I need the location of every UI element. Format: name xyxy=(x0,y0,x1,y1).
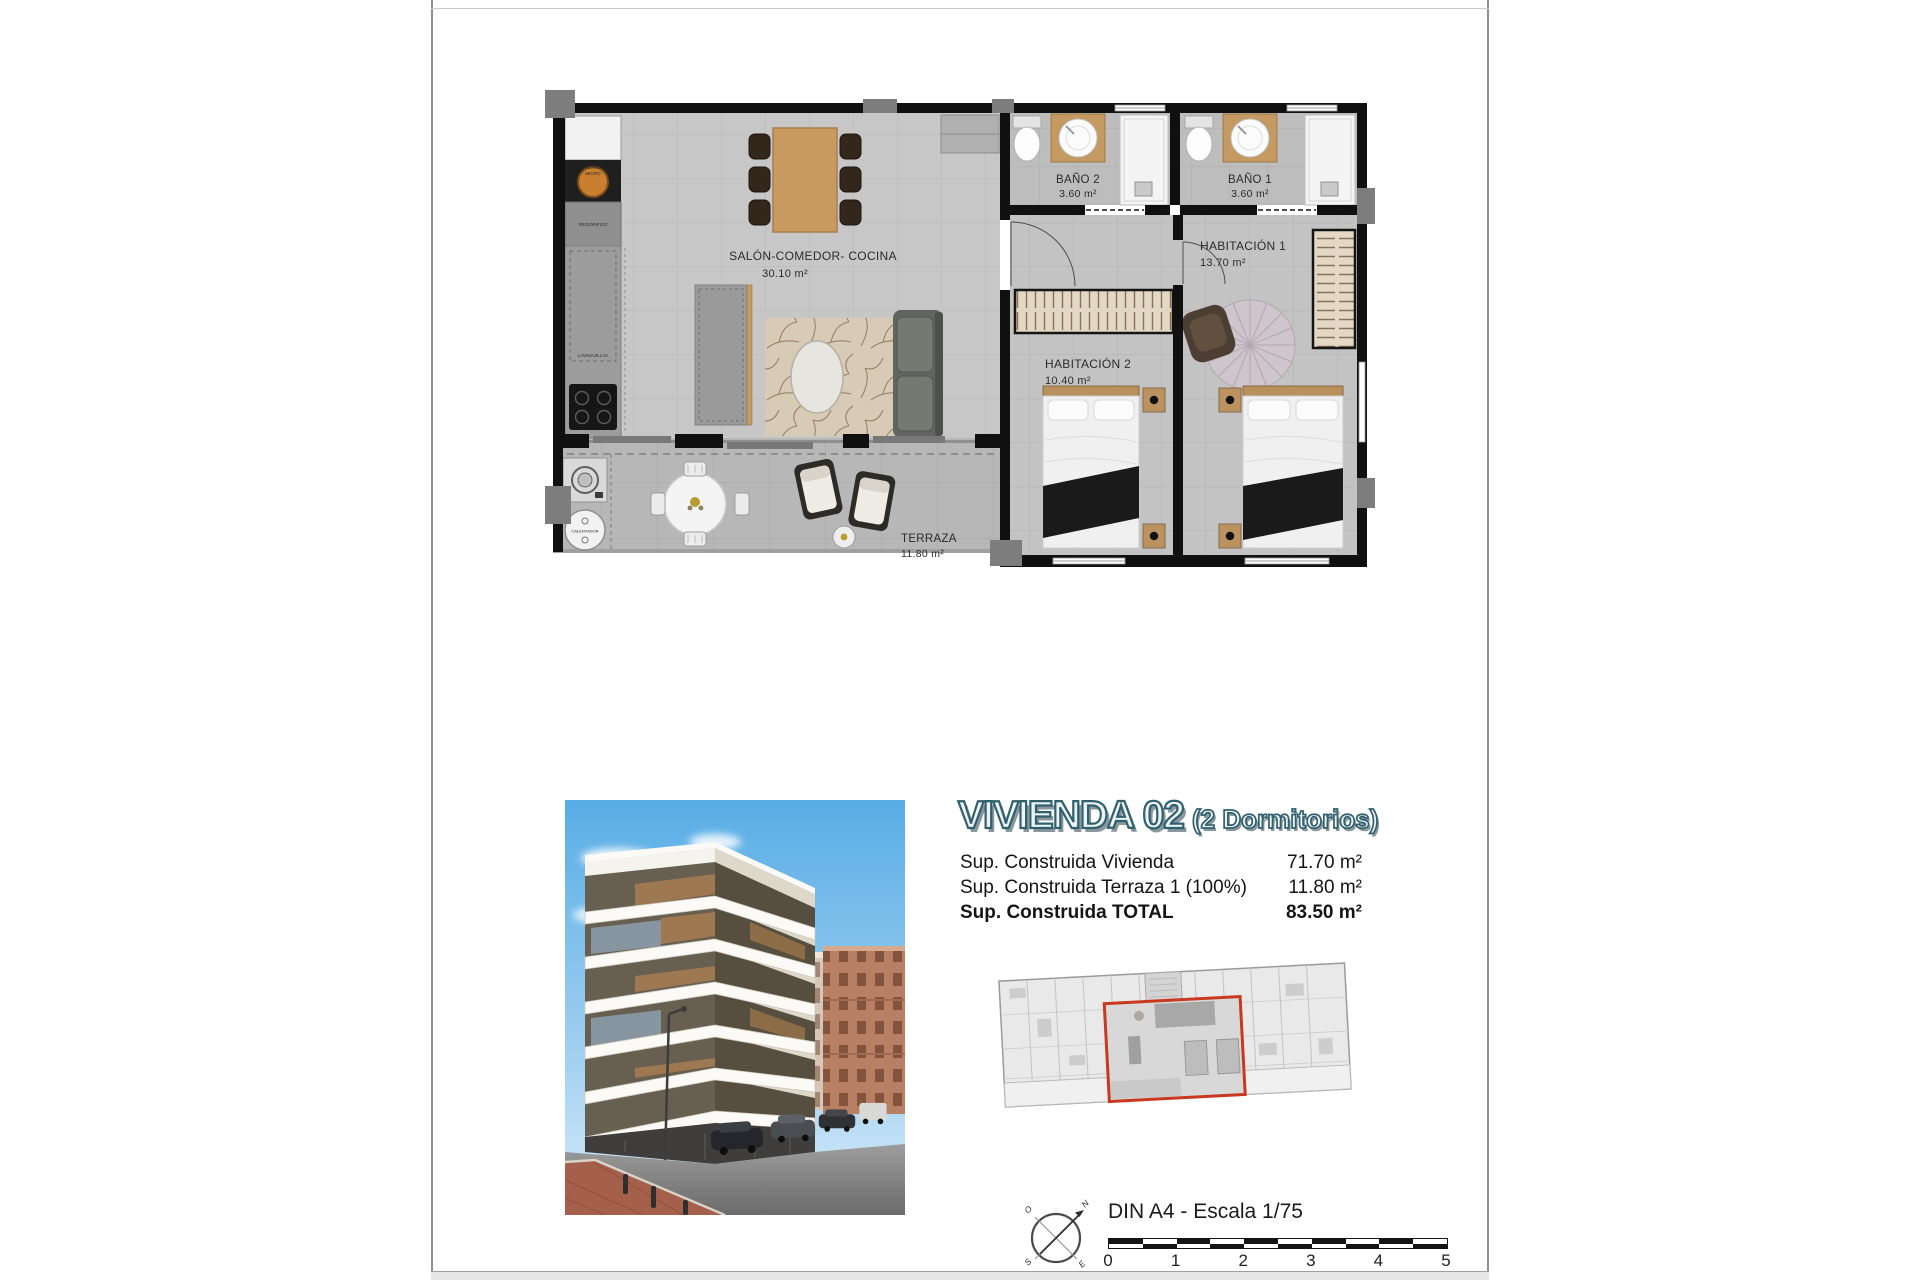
area-row-total: Sup. Construida TOTAL 83.50 m² xyxy=(960,900,1362,925)
compass-s: S xyxy=(1022,1256,1033,1267)
page-top-border xyxy=(431,8,1489,9)
sofa xyxy=(893,310,943,438)
scale-num-2: 2 xyxy=(1238,1251,1247,1271)
page-bottom-shade xyxy=(431,1272,1489,1280)
scale-num-4: 4 xyxy=(1374,1251,1383,1271)
room-label-bano1: BAÑO 1 xyxy=(1228,173,1272,186)
room-label-bano2: BAÑO 2 xyxy=(1056,173,1100,186)
room-label-hab1: HABITACIÓN 1 xyxy=(1200,238,1286,253)
toilet-tank xyxy=(1185,116,1213,128)
area-row-vivienda: Sup. Construida Vivienda 71.70 m² xyxy=(960,850,1362,875)
toilet-bowl xyxy=(1014,127,1040,161)
area-row-label: Sup. Construida Vivienda xyxy=(960,850,1174,875)
horno-micro-label: HORNO xyxy=(584,165,602,170)
key-plan xyxy=(988,950,1363,1125)
kitchen-island xyxy=(695,285,752,425)
unit-title-main: VIVIENDA 02 xyxy=(958,794,1184,837)
scale-numbers: 0 1 2 3 4 5 xyxy=(1108,1251,1446,1271)
room-area-bano2: 3.60 m² xyxy=(1059,188,1097,200)
area-row-terraza: Sup. Construida Terraza 1 (100%) 11.80 m… xyxy=(960,875,1362,900)
scale-num-3: 3 xyxy=(1306,1251,1315,1271)
terrace-side-table xyxy=(833,526,855,548)
room-label-hab2: HABITACIÓN 2 xyxy=(1045,356,1131,371)
toilet-tank xyxy=(1013,116,1041,128)
key-plan-highlight xyxy=(1104,997,1245,1102)
kitchen-units: HORNO MICRO FRIGORIFICO LAVAVAJILLAS xyxy=(565,116,625,438)
living-rug xyxy=(765,318,893,436)
unit-title: VIVIENDA 02(2 Dormitorios) xyxy=(958,794,1378,838)
horno-micro-label2: MICRO xyxy=(585,171,601,176)
lavavajillas-label: LAVAVAJILLAS xyxy=(578,353,608,358)
compass-o: O xyxy=(1022,1203,1034,1215)
page-right-border xyxy=(1487,0,1489,1280)
frigorifico-label: FRIGORIFICO xyxy=(579,222,608,227)
floor-plan: HORNO MICRO FRIGORIFICO LAVAVAJILLAS xyxy=(545,90,1375,580)
area-row-value: 71.70 m² xyxy=(1287,850,1362,875)
coffee-table xyxy=(791,341,843,413)
scale-num-1: 1 xyxy=(1171,1251,1180,1271)
room-label-salon: SALÓN-COMEDOR- COCINA xyxy=(729,248,897,263)
scale-num-5: 5 xyxy=(1441,1251,1450,1271)
room-label-terraza: TERRAZA xyxy=(901,533,957,545)
living-sideboard xyxy=(941,115,999,153)
room-area-bano1: 3.60 m² xyxy=(1231,188,1269,200)
room-area-hab1: 13.70 m² xyxy=(1200,257,1246,269)
area-table: Sup. Construida Vivienda 71.70 m² Sup. C… xyxy=(960,850,1362,925)
room-area-hab2: 10.40 m² xyxy=(1045,375,1091,387)
plan-sheet-page: HORNO MICRO FRIGORIFICO LAVAVAJILLAS xyxy=(0,0,1920,1280)
area-row-value: 83.50 m² xyxy=(1286,900,1362,925)
room-area-terraza: 11.80 m² xyxy=(901,548,944,560)
building-photo xyxy=(565,800,905,1215)
scale-bar xyxy=(1108,1238,1448,1249)
calentador-label: CALENTADOR xyxy=(571,529,598,534)
unit-title-sub: (2 Dormitorios) xyxy=(1192,804,1378,834)
sink-basin xyxy=(1231,119,1269,157)
room-area-salon: 30.10 m² xyxy=(762,268,808,280)
wardrobe-hab2 xyxy=(1015,290,1173,333)
toilet-bowl xyxy=(1186,127,1212,161)
area-row-label: Sup. Construida TOTAL xyxy=(960,900,1174,925)
area-row-value: 11.80 m² xyxy=(1288,875,1362,900)
wardrobe-hab1 xyxy=(1313,230,1355,348)
scale-text: DIN A4 - Escala 1/75 xyxy=(1108,1200,1303,1224)
sink-basin xyxy=(1059,119,1097,157)
compass-n: N xyxy=(1079,1197,1091,1209)
area-row-label: Sup. Construida Terraza 1 (100%) xyxy=(960,875,1247,900)
page-left-border xyxy=(431,0,433,1280)
scale-num-0: 0 xyxy=(1103,1251,1112,1271)
compass-e: E xyxy=(1076,1258,1087,1269)
compass: N O S E xyxy=(1018,1192,1098,1272)
dining-table xyxy=(749,128,861,232)
